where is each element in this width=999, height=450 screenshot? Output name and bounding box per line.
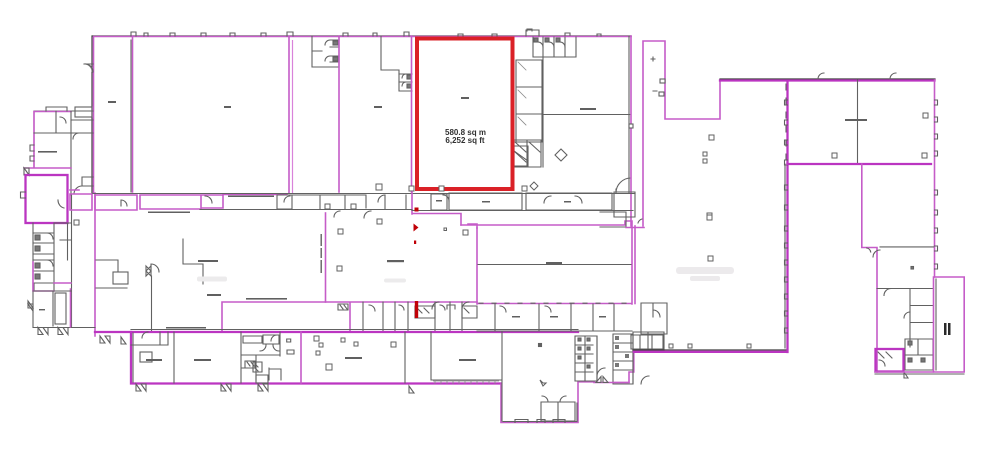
svg-text:6,252 sq ft: 6,252 sq ft <box>445 136 484 145</box>
